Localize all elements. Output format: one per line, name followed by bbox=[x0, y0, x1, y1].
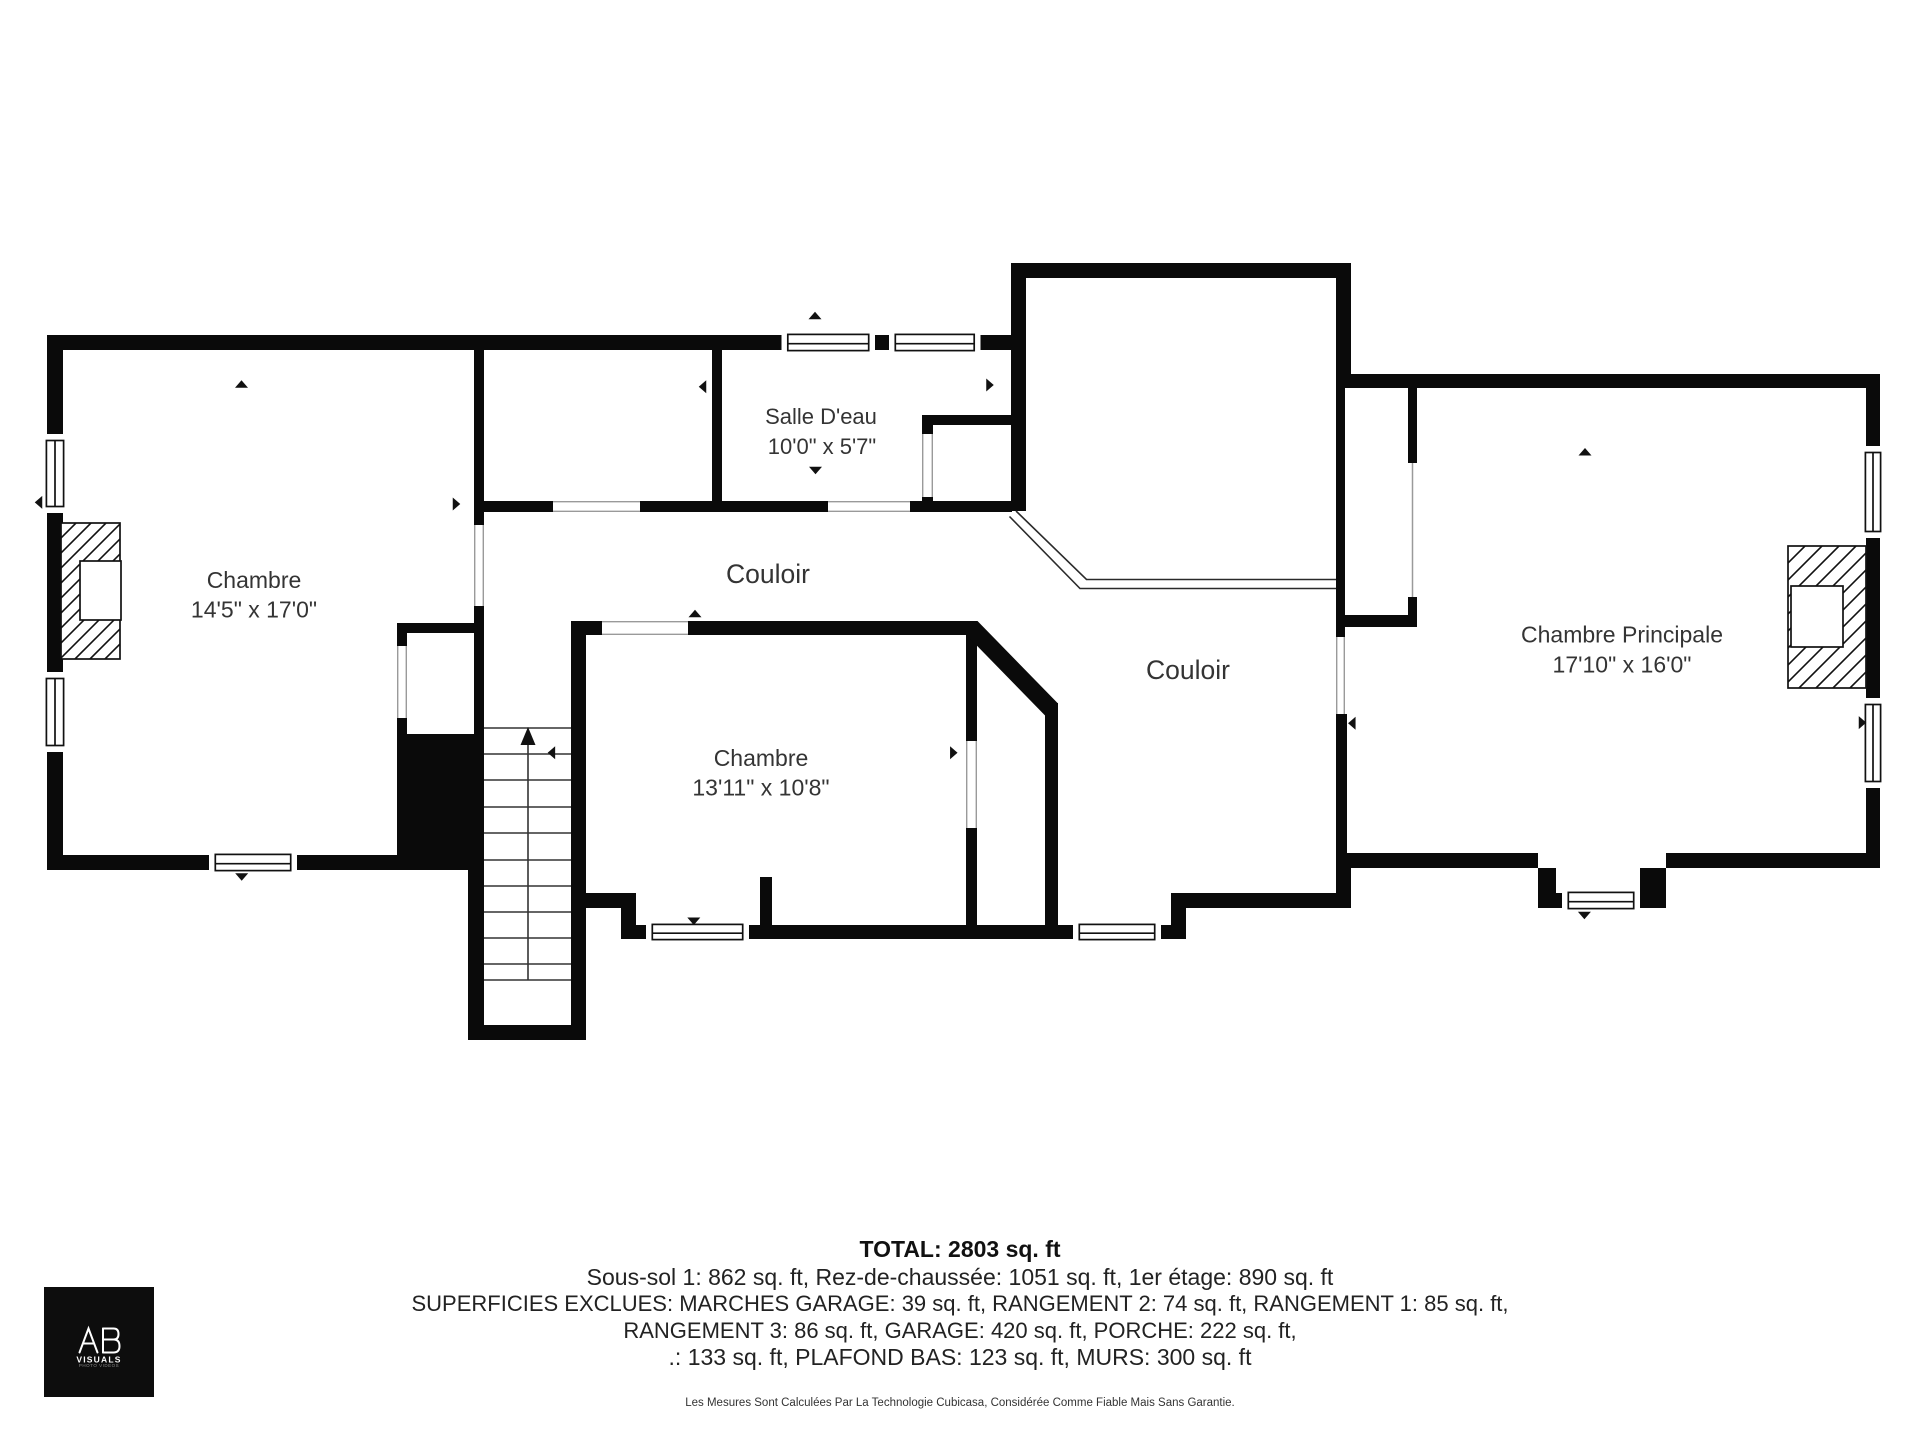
svg-text:Couloir: Couloir bbox=[1146, 655, 1230, 685]
svg-text:Chambre: Chambre bbox=[714, 745, 809, 771]
svg-text:Les Mesures Sont Calculées Par: Les Mesures Sont Calculées Par La Techno… bbox=[685, 1397, 1235, 1409]
svg-text:SUPERFICIES EXCLUES: MARCHES G: SUPERFICIES EXCLUES: MARCHES GARAGE: 39 … bbox=[411, 1291, 1508, 1316]
svg-text:.: 133 sq. ft, PLAFOND BAS: 12: .: 133 sq. ft, PLAFOND BAS: 123 sq. ft, … bbox=[669, 1344, 1253, 1370]
svg-text:Sous-sol 1: 862 sq. ft, Rez-de: Sous-sol 1: 862 sq. ft, Rez-de-chaussée:… bbox=[587, 1264, 1334, 1290]
svg-text:14'5" x 17'0": 14'5" x 17'0" bbox=[191, 596, 317, 622]
svg-text:PHOTO VIDEOS: PHOTO VIDEOS bbox=[79, 1363, 119, 1368]
svg-text:Chambre: Chambre bbox=[207, 567, 302, 593]
svg-text:10'0" x 5'7": 10'0" x 5'7" bbox=[768, 434, 876, 459]
svg-text:13'11" x 10'8": 13'11" x 10'8" bbox=[692, 775, 829, 801]
svg-text:TOTAL: 2803 sq. ft: TOTAL: 2803 sq. ft bbox=[859, 1236, 1060, 1262]
svg-text:Chambre Principale: Chambre Principale bbox=[1521, 622, 1723, 648]
svg-text:RANGEMENT 3: 86 sq. ft, GARAGE: RANGEMENT 3: 86 sq. ft, GARAGE: 420 sq. … bbox=[623, 1318, 1296, 1343]
svg-text:Couloir: Couloir bbox=[726, 559, 810, 589]
svg-text:17'10" x 16'0": 17'10" x 16'0" bbox=[1553, 652, 1692, 678]
svg-text:Salle D'eau: Salle D'eau bbox=[765, 404, 877, 429]
